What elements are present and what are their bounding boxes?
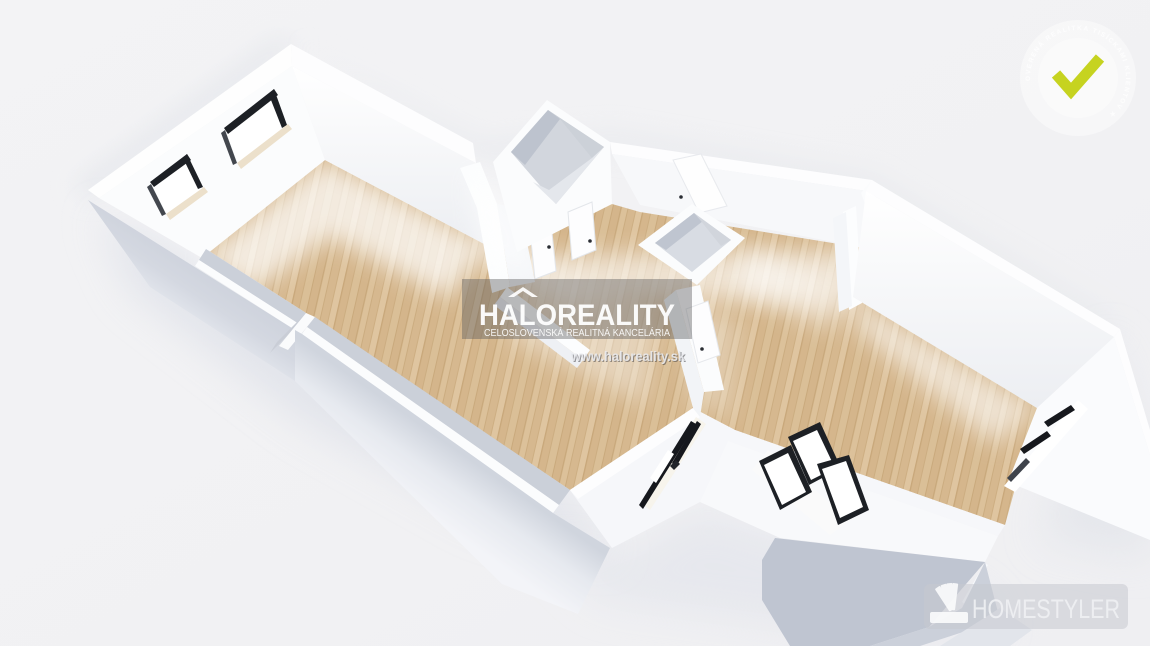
svg-text:HOMESTYLER: HOMESTYLER: [972, 594, 1120, 624]
svg-text:www.haloreality.sk: www.haloreality.sk: [570, 348, 685, 364]
svg-text:CELOSLOVENSKÁ REALITNÁ KANCELÁ: CELOSLOVENSKÁ REALITNÁ KANCELÁRIA: [484, 326, 670, 339]
